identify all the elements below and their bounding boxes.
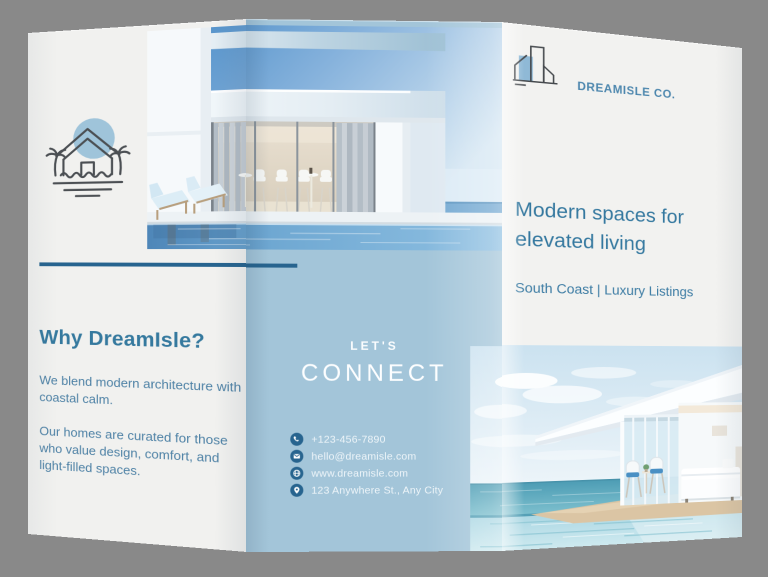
contact-address: 123 Anywhere St., Any City: [311, 484, 443, 496]
location-pin-icon: [290, 484, 303, 497]
connect-title: CONNECT: [246, 360, 502, 388]
villa-pool-photo-left-part: [147, 25, 247, 249]
villa-pool-photo-main: [246, 25, 502, 251]
brochure-middle-panel: LET'S CONNECT +123-456-7890 hello@dreami…: [246, 19, 502, 552]
divider-line-spill: [246, 263, 297, 267]
envelope-icon: [290, 450, 303, 463]
phone-icon: [290, 433, 303, 446]
contact-row-email: hello@dreamisle.com: [290, 450, 490, 463]
contact-website: www.dreamisle.com: [311, 467, 408, 479]
contact-row-address: 123 Anywhere St., Any City: [290, 483, 490, 496]
cover-headline: Modern spaces for elevated living: [515, 195, 723, 262]
brand-name: DREAMISLE CO.: [577, 81, 675, 101]
cover-subhead: South Coast | Luxury Listings: [515, 280, 734, 300]
contact-list: +123-456-7890 hello@dreamisle.com www.dr…: [290, 433, 490, 497]
contact-row-website: www.dreamisle.com: [290, 467, 490, 480]
left-paragraph-2: Our homes are curated for those who valu…: [39, 423, 242, 487]
brochure-right-panel: DREAMISLE CO. Modern spaces for elevated…: [501, 22, 742, 551]
brochure-left-panel: Why DreamIsle? We blend modern architect…: [28, 19, 247, 552]
brochure-mockup: Why DreamIsle? We blend modern architect…: [0, 0, 768, 577]
contact-row-phone: +123-456-7890: [290, 433, 490, 446]
left-heading: Why DreamIsle?: [39, 327, 244, 355]
contact-email: hello@dreamisle.com: [311, 450, 416, 462]
beach-house-icon: [43, 106, 133, 204]
left-paragraph-1: We blend modern architecture with coasta…: [39, 372, 242, 415]
divider-line: [39, 262, 247, 267]
beach-villa-photo-sliver: [470, 346, 502, 551]
contact-phone: +123-456-7890: [311, 433, 385, 445]
globe-icon: [290, 467, 303, 480]
connect-kicker: LET'S: [246, 339, 502, 354]
beach-villa-photo-main: [501, 345, 742, 551]
buildings-logo-icon: [512, 37, 571, 94]
